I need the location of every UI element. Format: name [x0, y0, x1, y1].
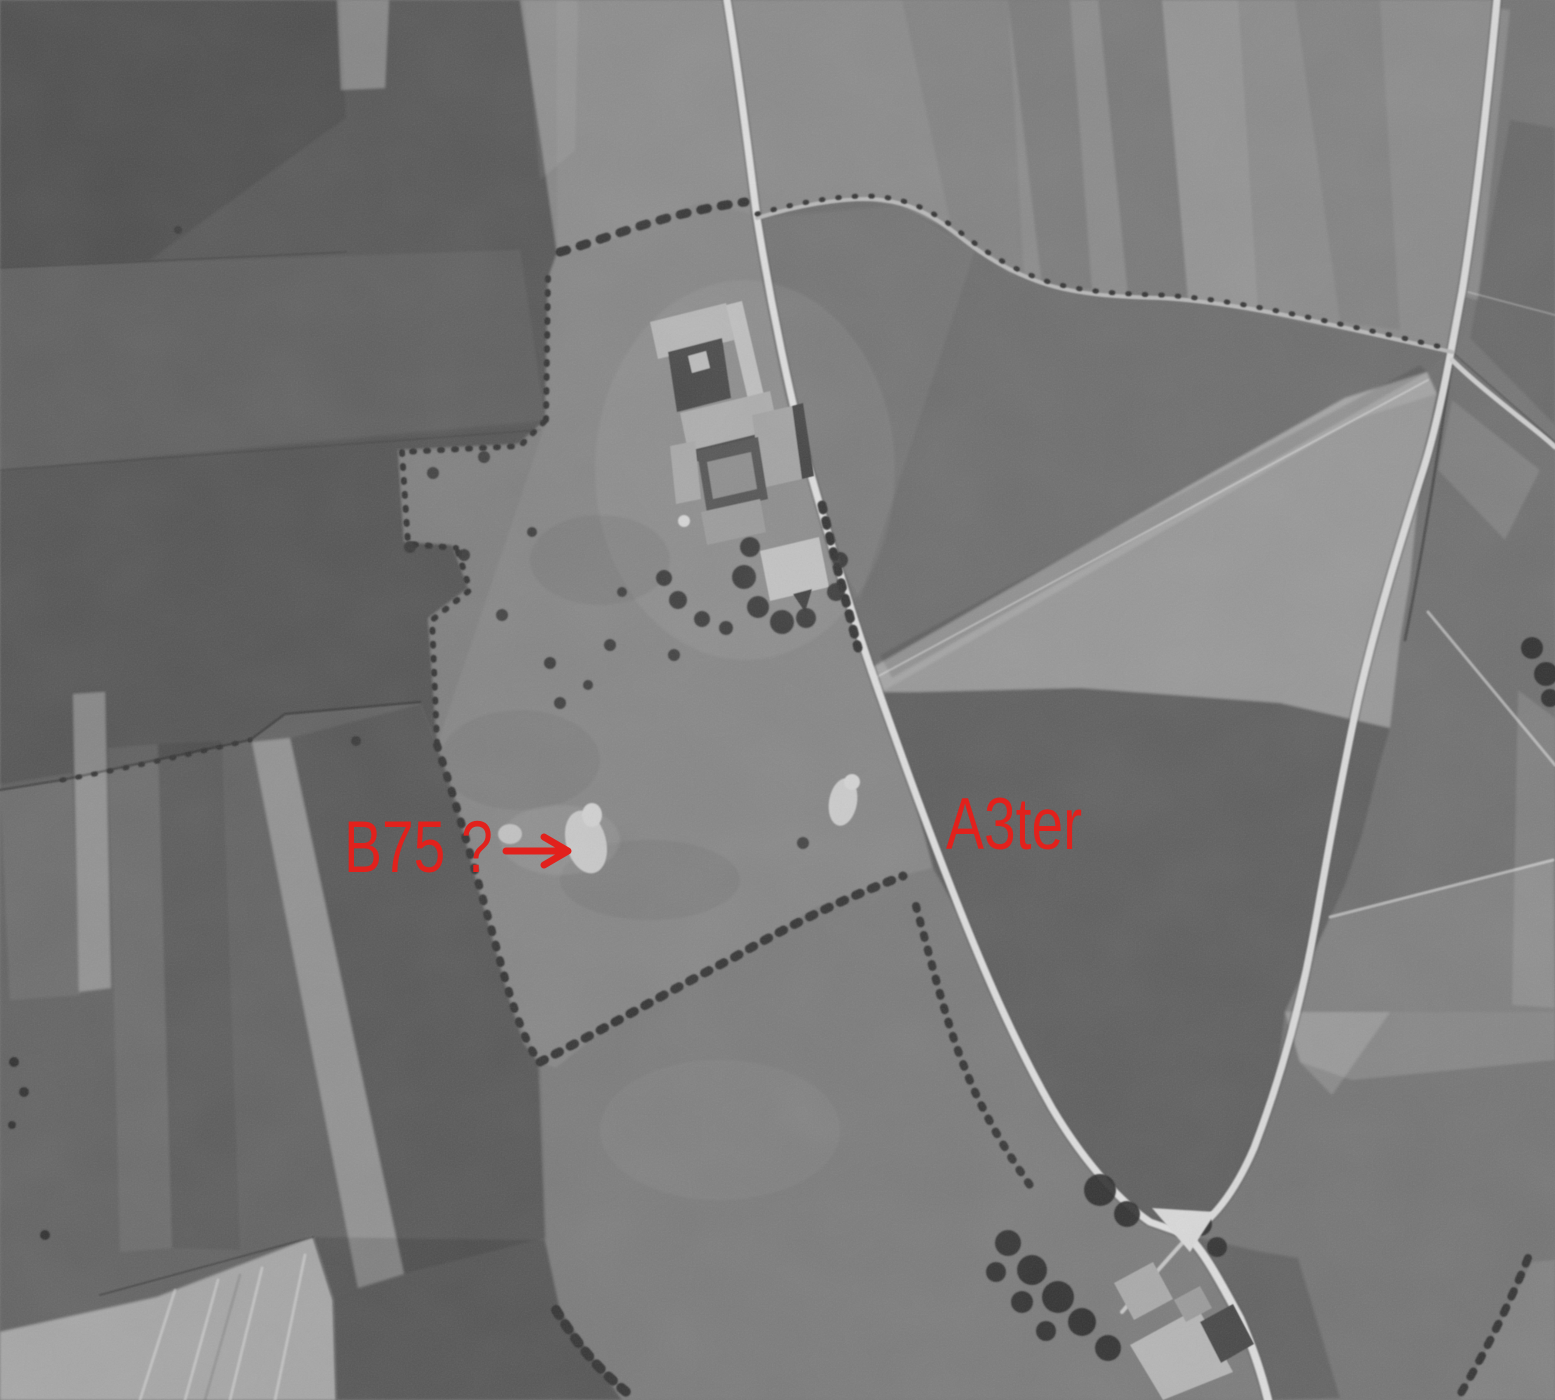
- photo-grain-texture: [0, 0, 1555, 1400]
- aerial-photo-canvas: B75 ? A3ter: [0, 0, 1555, 1400]
- annotation-b75-label: B75 ?: [344, 806, 493, 887]
- aerial-photo: B75 ? A3ter: [0, 0, 1555, 1400]
- annotation-a3ter-label: A3ter: [946, 783, 1082, 864]
